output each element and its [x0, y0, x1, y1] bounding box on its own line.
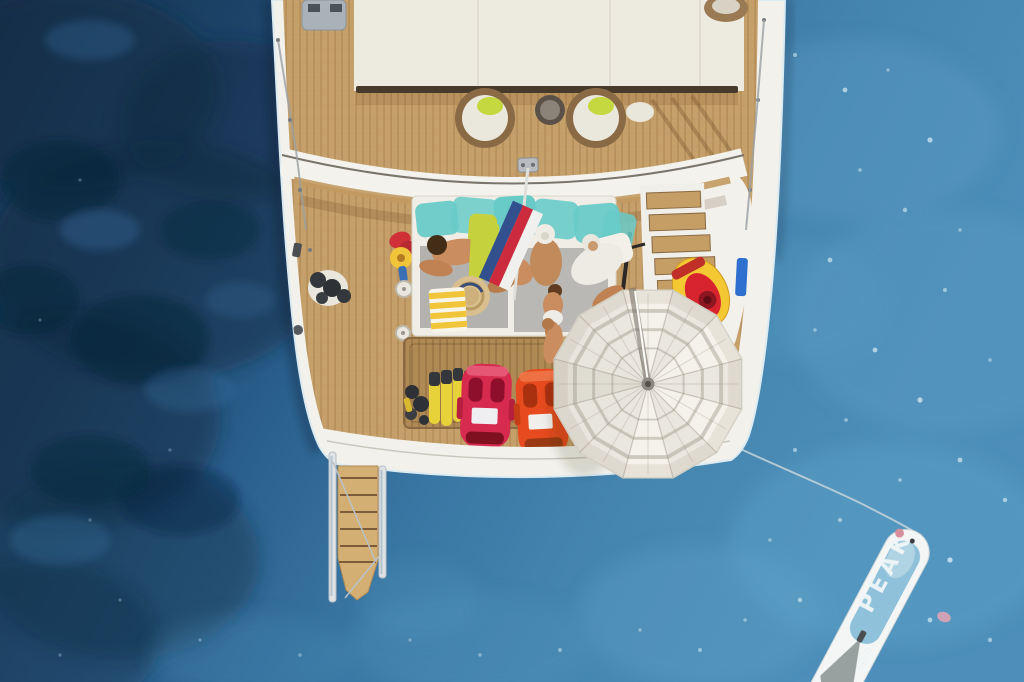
seabob-red — [456, 363, 517, 449]
sun-awning — [354, 0, 744, 91]
striped-towel — [429, 287, 468, 333]
hatch-fitting-2 — [330, 4, 342, 12]
wicker-chair-1 — [455, 88, 515, 148]
rail-shine-right — [381, 470, 383, 574]
coffee-table — [535, 95, 565, 125]
wicker-chair-2 — [566, 88, 626, 148]
photo-canvas: PEAK 10.0 — [0, 0, 1024, 682]
hatch-fitting-1 — [308, 4, 320, 12]
storage-box-blue — [735, 258, 748, 297]
cushion-extra — [626, 102, 654, 122]
swim-ring — [390, 247, 412, 269]
aerial-yacht-photo: PEAK 10.0 — [0, 0, 1024, 682]
awning-bar — [356, 86, 738, 93]
deck-cleat — [293, 325, 303, 335]
parasol-pole-top — [645, 381, 651, 387]
rail-shine-left — [331, 456, 333, 596]
